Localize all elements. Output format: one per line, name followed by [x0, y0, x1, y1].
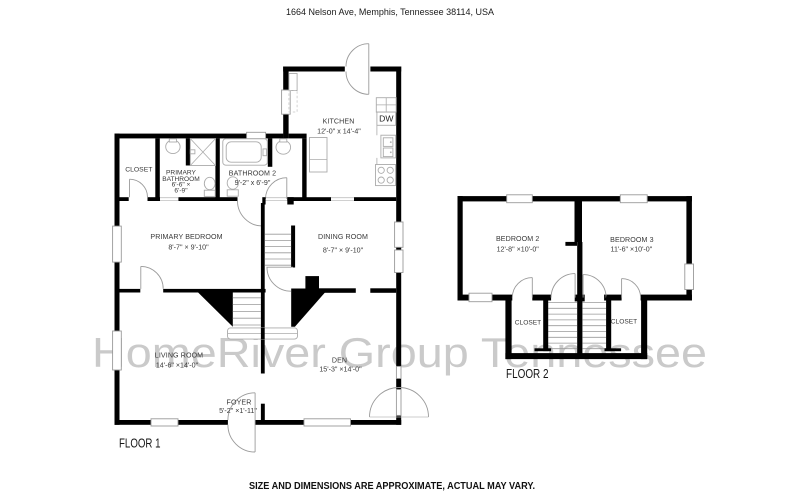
- svg-text:BEDROOM 3: BEDROOM 3: [610, 236, 653, 244]
- svg-text:CLOSET: CLOSET: [515, 320, 541, 327]
- svg-text:14'-6" ×14'-0": 14'-6" ×14'-0": [156, 362, 199, 370]
- svg-text:FOYER: FOYER: [227, 398, 252, 406]
- svg-text:KITCHEN: KITCHEN: [323, 118, 355, 126]
- svg-text:8'-7" × 9'-10": 8'-7" × 9'-10": [323, 247, 364, 255]
- svg-text:12'-8" ×10'-0": 12'-8" ×10'-0": [497, 246, 540, 254]
- svg-text:9'-2" x 6'-9": 9'-2" x 6'-9": [235, 179, 271, 187]
- svg-text:DINING ROOM: DINING ROOM: [318, 233, 368, 241]
- svg-text:SIZE AND DIMENSIONS ARE APPROX: SIZE AND DIMENSIONS ARE APPROXIMATE, ACT…: [249, 481, 535, 492]
- svg-text:6'-9": 6'-9": [174, 188, 188, 195]
- svg-text:12'-0" x 14'-4": 12'-0" x 14'-4": [317, 128, 361, 136]
- svg-text:FLOOR 1: FLOOR 1: [119, 436, 161, 451]
- svg-text:15'-3" ×14'-0": 15'-3" ×14'-0": [319, 366, 362, 374]
- svg-text:DEN: DEN: [332, 357, 347, 365]
- svg-text:FLOOR 2: FLOOR 2: [506, 366, 549, 381]
- svg-text:11'-6" ×10'-0": 11'-6" ×10'-0": [611, 246, 653, 254]
- svg-text:5'-2" ×1'-11": 5'-2" ×1'-11": [219, 407, 257, 415]
- svg-text:8'-7" × 9'-10": 8'-7" × 9'-10": [168, 244, 209, 252]
- svg-text:1664 Nelson Ave, Memphis, Tenn: 1664 Nelson Ave, Memphis, Tennessee 3811…: [286, 7, 495, 18]
- svg-text:LIVING ROOM: LIVING ROOM: [155, 352, 203, 360]
- svg-text:BEDROOM 2: BEDROOM 2: [496, 235, 539, 243]
- svg-text:DW: DW: [379, 114, 394, 124]
- svg-text:BATHROOM 2: BATHROOM 2: [229, 170, 276, 178]
- svg-text:CLOSET: CLOSET: [125, 167, 152, 174]
- svg-text:CLOSET: CLOSET: [611, 319, 637, 326]
- svg-text:PRIMARY BEDROOM: PRIMARY BEDROOM: [150, 233, 222, 241]
